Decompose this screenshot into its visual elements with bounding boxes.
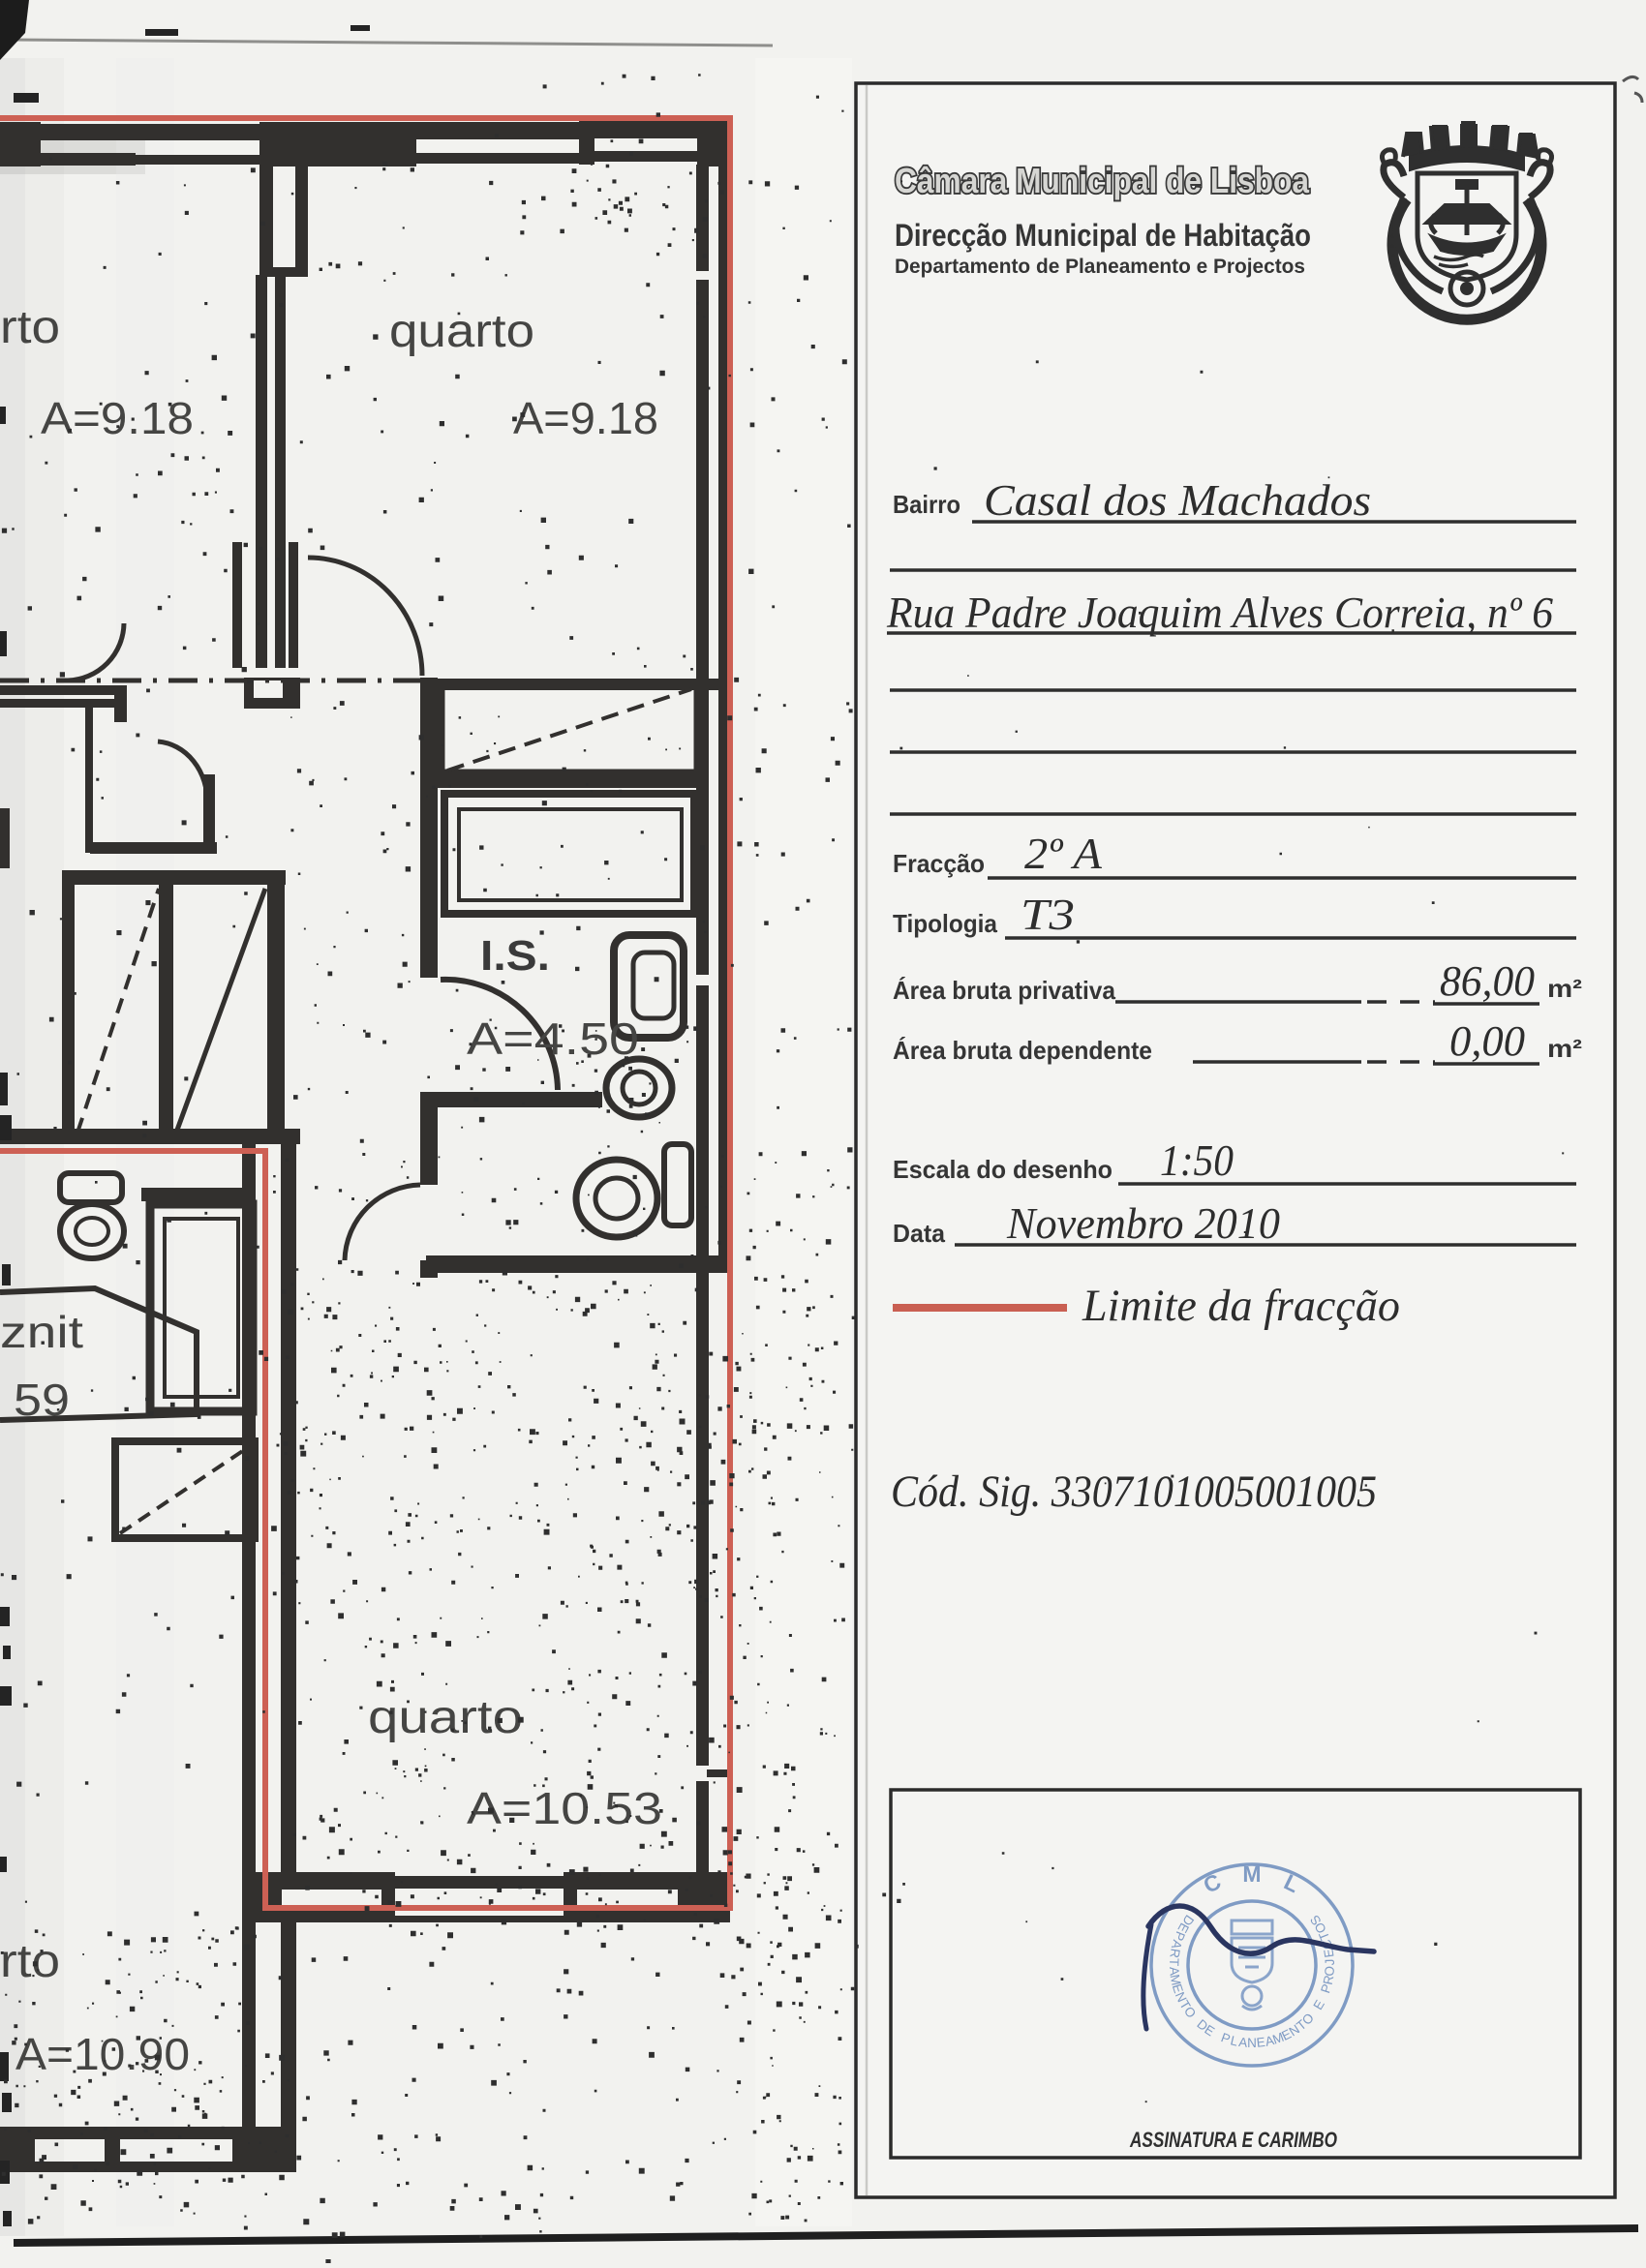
svg-text:A=9.18: A=9.18 — [513, 393, 658, 443]
svg-text:quarto: quarto — [389, 306, 534, 357]
svg-text:m²: m² — [1547, 974, 1582, 1003]
svg-text:A=10.53: A=10.53 — [467, 1783, 662, 1833]
svg-text:O: O — [1322, 1965, 1337, 1977]
svg-text:86,00: 86,00 — [1440, 957, 1535, 1005]
svg-text:Câmara Municipal de Lisboa: Câmara Municipal de Lisboa — [895, 161, 1310, 200]
svg-text:Casal dos Machados: Casal dos Machados — [984, 475, 1371, 525]
svg-text:Cód. Sig. 3307101005001005: Cód. Sig. 3307101005001005 — [891, 1467, 1377, 1517]
svg-text:A=10.90: A=10.90 — [15, 2029, 190, 2079]
svg-text:A=4.50: A=4.50 — [467, 1013, 639, 1064]
svg-text:2º A: 2º A — [1024, 829, 1103, 878]
svg-text:quarto: quarto — [368, 1692, 523, 1743]
svg-text:1:50: 1:50 — [1160, 1135, 1234, 1185]
svg-text:Limite da fracção: Limite da fracção — [1082, 1281, 1400, 1331]
svg-text:Tipologia: Tipologia — [893, 909, 997, 938]
svg-text:M: M — [1242, 1861, 1261, 1887]
svg-text:Novembro 2010: Novembro 2010 — [1006, 1198, 1280, 1248]
svg-text:Escala do desenho: Escala do desenho — [893, 1155, 1113, 1184]
svg-text:m²: m² — [1547, 1034, 1582, 1063]
svg-text:J: J — [1323, 1958, 1337, 1965]
svg-text:Rua Padre Joaquim Alves Correi: Rua Padre Joaquim Alves Correia, nº 6 — [886, 588, 1553, 637]
svg-text:I.S.: I.S. — [480, 932, 550, 980]
svg-text:Fracção: Fracção — [893, 849, 985, 878]
svg-text:rto: rto — [0, 302, 60, 353]
svg-text:59: 59 — [14, 1375, 70, 1425]
svg-text:Data: Data — [893, 1219, 946, 1248]
svg-text:rto: rto — [0, 1936, 60, 1987]
svg-text:Direcção Municipal de Habitaçã: Direcção Municipal de Habitação — [895, 218, 1311, 253]
svg-text:Área bruta privativa: Área bruta privativa — [893, 976, 1115, 1005]
svg-text:Departamento de Planeamento e: Departamento de Planeamento e Projectos — [895, 255, 1305, 278]
svg-text:T: T — [1167, 1958, 1181, 1967]
svg-text:A=9.18: A=9.18 — [41, 393, 194, 443]
svg-text:Bairro: Bairro — [893, 490, 960, 519]
svg-text:T3: T3 — [1021, 890, 1075, 939]
svg-text:ASSINATURA E CARIMBO: ASSINATURA E CARIMBO — [1129, 2128, 1337, 2152]
svg-text:0,00: 0,00 — [1449, 1017, 1525, 1065]
svg-text:Área bruta dependente: Área bruta dependente — [893, 1036, 1152, 1065]
svg-text:znit: znit — [0, 1307, 83, 1357]
